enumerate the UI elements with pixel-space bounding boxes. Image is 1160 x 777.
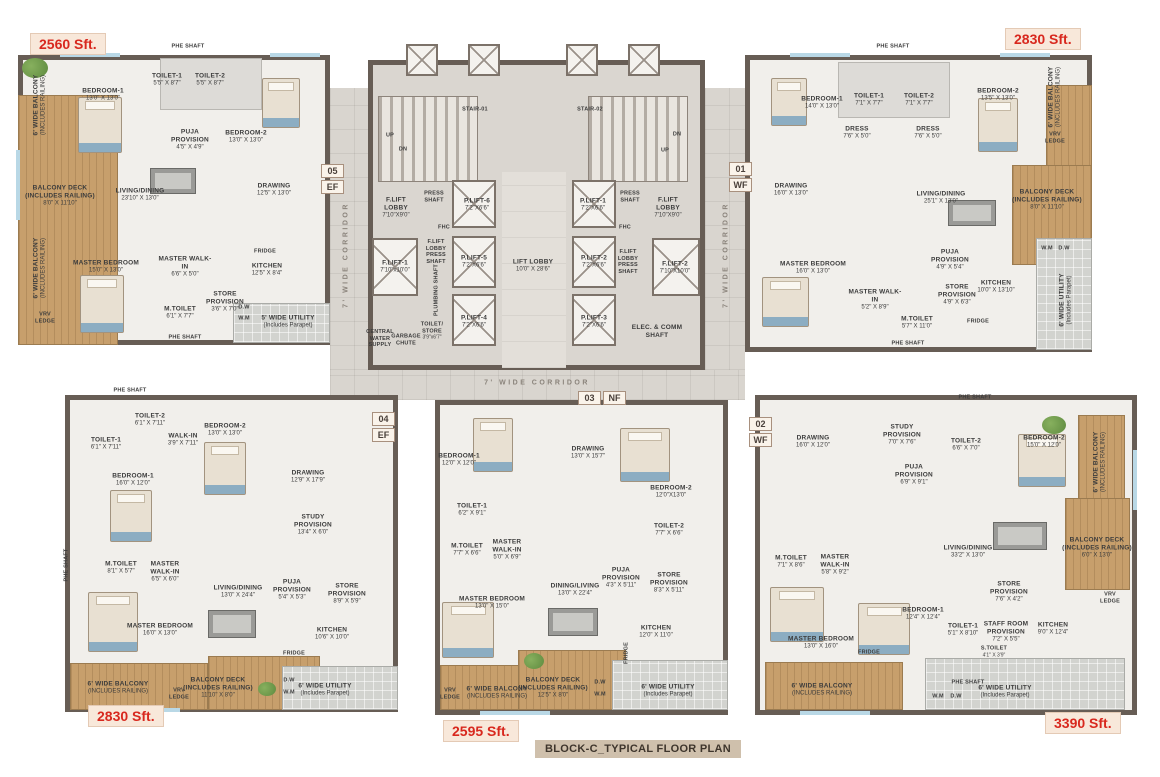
room-name: PUJA PROVISION xyxy=(888,464,940,480)
room-name: STORE PROVISION xyxy=(642,572,696,588)
label-up: UP xyxy=(386,133,394,140)
label-vrv-ledge: VRV LEDGE xyxy=(29,311,61,324)
room-dimension: 16'0" X 12'0" xyxy=(796,442,830,449)
area-label: 2830 Sft. xyxy=(1005,28,1081,50)
room-name: M.TOILET xyxy=(775,555,807,563)
room-dimension: 13'4" X 6'0" xyxy=(283,529,343,536)
room-dimension: 23'10" X 13'0" xyxy=(116,195,165,202)
room-dimension: 13'0" X 13'0" xyxy=(225,137,267,144)
room-name: BEDROOM-1 xyxy=(438,453,480,461)
label-phe-shaft: PHE SHAFT xyxy=(64,549,71,582)
zone-bed xyxy=(262,78,300,128)
label-press-shaft: PRESS SHAFT xyxy=(419,190,449,203)
label-drawing: DRAWING13'0" X 15'7" xyxy=(571,446,605,461)
label-phe-shaft: PHE SHAFT xyxy=(169,335,202,342)
room-name: MASTER WALK-IN xyxy=(483,539,531,555)
label-balcony-deck-includes-railing: BALCONY DECK (INCLUDES RAILING)11'10" X … xyxy=(179,677,257,700)
label-p-lift-6: P.LIFT-67'2"X6'6" xyxy=(464,198,490,213)
label-master-walk-in: MASTER WALK-IN5'2" X 8'9" xyxy=(847,289,903,312)
room-name: P.LIFT-6 xyxy=(464,198,490,206)
label-p-lift-2: P.LIFT-27'2"X6'6" xyxy=(581,255,607,270)
label-d-w: D.W xyxy=(950,694,961,701)
label-plumbing-shaft: PLUMBING SHAFT xyxy=(434,264,441,316)
room-name: TOILET-2 xyxy=(904,93,934,101)
room-name: D.W xyxy=(1058,246,1069,253)
room-name: FRIDGE xyxy=(967,319,989,326)
room-dimension: 7'2"X6'6" xyxy=(581,262,607,269)
label-up: UP xyxy=(661,148,669,155)
room-dimension: 16'0" X 13'0" xyxy=(774,190,808,197)
room-name: MASTER WALK-IN xyxy=(847,289,903,305)
room-name: P.LIFT-5 xyxy=(461,255,487,263)
room-name: MASTER WALK-IN xyxy=(139,561,191,577)
room-dimension: 7'10"X10'0" xyxy=(660,268,691,275)
label-master-walk-in: MASTER WALK-IN6'6" X 5'0" xyxy=(157,256,213,279)
label-bedroom-1: BEDROOM-116'0" X 12'0" xyxy=(112,473,154,488)
zone-table xyxy=(548,608,598,636)
badge-chip: EF xyxy=(321,180,344,194)
area-label: 2830 Sft. xyxy=(88,705,164,727)
label-m-toilet: M.TOILET8'1" X 5'7" xyxy=(105,561,137,576)
label-toilet-2: TOILET-26'6" X 7'0" xyxy=(951,438,981,453)
label-drawing: DRAWING12'9" X 17'9" xyxy=(291,470,325,485)
label-dn: DN xyxy=(399,147,407,154)
room-dimension: 13'0" X 24'4" xyxy=(214,592,263,599)
room-dimension: 12'0"X13'0" xyxy=(650,492,692,499)
zone-glass xyxy=(480,711,550,715)
room-name: DN xyxy=(399,147,407,154)
room-dimension: 10'6" X 10'0" xyxy=(315,634,349,641)
badge-chip: WF xyxy=(749,433,772,447)
label-bedroom-2: BEDROOM-213'5" X 13'0" xyxy=(977,88,1019,103)
zone-bed xyxy=(80,275,124,333)
room-dimension: 7'2"X6'6" xyxy=(464,205,490,212)
room-name: TOILET-2 xyxy=(135,413,165,421)
room-name: W.M xyxy=(932,694,944,701)
area-label: 3390 Sft. xyxy=(1045,712,1121,734)
label-6-wide-utility: 6' WIDE UTILITY(Includes Parapet) xyxy=(294,683,356,698)
label-living-dining: LIVING/DINING33'2" X 13'0" xyxy=(944,545,993,560)
label-toilet-1: TOILET-17'1" X 7'7" xyxy=(854,93,884,108)
label-toilet-2: TOILET-27'1" X 7'7" xyxy=(904,93,934,108)
label-fridge: FRIDGE xyxy=(254,249,276,256)
label-master-bedroom: MASTER BEDROOM16'0" X 13'0" xyxy=(127,623,193,638)
label-balcony-deck-includes-railing: BALCONY DECK (INCLUDES RAILING)8'0" X 11… xyxy=(23,185,97,208)
room-name: 6' WIDE BALCONY xyxy=(787,683,857,691)
room-dimension: 6'1" X 7'7" xyxy=(164,313,196,320)
room-name: BEDROOM-1 xyxy=(82,88,124,96)
room-dimension: 6'5" X 6'0" xyxy=(139,576,191,583)
room-dimension: 9'0" X 12'4" xyxy=(1038,629,1069,636)
room-dimension: 13'5" X 13'0" xyxy=(977,95,1019,102)
label-kitchen: KITCHEN12'5" X 8'4" xyxy=(252,263,283,278)
room-dimension: (INCLUDES RAILING) xyxy=(1100,432,1107,493)
room-dimension: 7'6" X 5'0" xyxy=(843,133,870,140)
room-name: PUJA PROVISION xyxy=(595,567,647,583)
label-balcony-deck-includes-railing: BALCONY DECK (INCLUDES RAILING)8'0" X 11… xyxy=(1010,189,1084,212)
room-name: LIFT LOBBY xyxy=(513,259,553,267)
room-name: BALCONY DECK (INCLUDES RAILING) xyxy=(179,677,257,693)
room-dimension: 7'1" X 8'6" xyxy=(775,562,807,569)
area-label: 2560 Sft. xyxy=(30,33,106,55)
room-name: BEDROOM-2 xyxy=(1023,435,1065,443)
label-bedroom-1: BEDROOM-112'0" X 12'0" xyxy=(438,453,480,468)
corridor-label: 7' WIDE CORRIDOR xyxy=(343,202,350,308)
room-name: STORE PROVISION xyxy=(982,581,1036,597)
label-stair-02: STAIR-02 xyxy=(577,107,603,114)
room-dimension: 7'2"X6'6" xyxy=(581,322,607,329)
room-name: STORE PROVISION xyxy=(320,583,374,599)
room-dimension: 5'1" X 8'10" xyxy=(948,630,979,637)
label-study-provision: STUDY PROVISION13'4" X 6'0" xyxy=(283,514,343,537)
room-name: TOILET-1 xyxy=(854,93,884,101)
room-dimension: 13'0" X 13'0" xyxy=(82,95,124,102)
badge-chip: EF xyxy=(372,428,395,442)
label-drawing: DRAWING12'5" X 13'0" xyxy=(257,183,291,198)
room-dimension: 13'0" X 15'0" xyxy=(459,603,525,610)
label-fridge: FRIDGE xyxy=(624,642,631,664)
label-6-wide-balcony: 6' WIDE BALCONY(INCLUDES RAILING) xyxy=(33,238,48,299)
room-name: 6' WIDE UTILITY xyxy=(294,683,356,691)
room-name: M.TOILET xyxy=(164,306,196,314)
room-dimension: 7'6" X 4'2" xyxy=(982,596,1036,603)
area-label: 2595 Sft. xyxy=(443,720,519,742)
label-f-lift-lobby-press-shaft: F.LIFT LOBBY PRESS SHAFT xyxy=(613,249,643,275)
label-p-lift-4: P.LIFT-47'2"X6'6" xyxy=(461,315,487,330)
room-name: TOILET-1 xyxy=(91,437,121,445)
label-p-lift-1: P.LIFT-17'2"X6'6" xyxy=(580,198,606,213)
room-name: P.LIFT-4 xyxy=(461,315,487,323)
zone-stair xyxy=(588,96,688,182)
room-name: TOILET-2 xyxy=(654,523,684,531)
unit-badge-05-ef: 05EF xyxy=(321,164,344,194)
zone-lift xyxy=(468,44,500,76)
room-dimension: (INCLUDES RAILING) xyxy=(1055,67,1062,128)
label-6-wide-utility: 6' WIDE UTILITY(Includes Parapet) xyxy=(1059,273,1074,326)
label-bedroom-1: BEDROOM-114'0" X 13'0" xyxy=(801,96,843,111)
label-master-walk-in: MASTER WALK-IN6'5" X 6'0" xyxy=(139,561,191,584)
label-vrv-ledge: VRV LEDGE xyxy=(1094,591,1126,604)
room-name: STAIR-02 xyxy=(577,107,603,114)
label-puja-provision: PUJA PROVISION4'9" X 5'4" xyxy=(924,249,976,272)
label-phe-shaft: PHE SHAFT xyxy=(952,680,985,687)
room-dimension: 13'0" X 16'0" xyxy=(788,643,854,650)
label-drawing: DRAWING16'0" X 13'0" xyxy=(774,183,808,198)
label-s-toilet: S.TOILET4'1" X 3'9" xyxy=(973,646,1015,659)
label-6-wide-balcony: 6' WIDE BALCONY(INCLUDES RAILING) xyxy=(1093,432,1108,493)
label-6-wide-balcony: 6' WIDE BALCONY(INCLUDES RAILING) xyxy=(33,75,48,136)
label-stair-01: STAIR-01 xyxy=(462,107,488,114)
zone-bed xyxy=(204,442,246,495)
room-dimension: 4'9" X 6'3" xyxy=(930,299,984,306)
room-name: PHE SHAFT xyxy=(64,549,71,582)
zone-bath xyxy=(838,62,950,118)
room-dimension: 7'2"X6'6" xyxy=(461,262,487,269)
label-bedroom-1: BEDROOM-112'4" X 12'4" xyxy=(902,607,944,622)
room-name: W.M xyxy=(594,692,606,699)
label-dn: DN xyxy=(673,132,681,139)
room-name: PHE SHAFT xyxy=(892,341,925,348)
room-dimension: 5'7" X 11'0" xyxy=(901,323,933,330)
room-name: 6' WIDE UTILITY xyxy=(637,684,699,692)
room-dimension: 4'1" X 3'9" xyxy=(973,652,1015,658)
label-5-wide-utility: 5' WIDE UTILITY(Includes Parapet) xyxy=(257,315,319,330)
zone-bed xyxy=(78,97,122,153)
zone-bed xyxy=(110,490,152,542)
room-dimension: 8'3" X 5'11" xyxy=(642,587,696,594)
room-dimension: 7'2"X6'6" xyxy=(580,205,606,212)
label-press-shaft: PRESS SHAFT xyxy=(615,190,645,203)
room-name: TOILET-2 xyxy=(195,73,225,81)
room-name: D.W xyxy=(950,694,961,701)
room-dimension: 8'0" X 11'10" xyxy=(23,200,97,207)
zone-table xyxy=(208,610,256,638)
label-master-bedroom: MASTER BEDROOM16'0" X 13'0" xyxy=(780,261,846,276)
label-toilet-1: TOILET-15'1" X 8'10" xyxy=(948,623,979,638)
label-puja-provision: PUJA PROVISION4'3" X 5'11" xyxy=(595,567,647,590)
label-m-toilet: M.TOILET7'7" X 6'6" xyxy=(451,543,483,558)
room-name: F.LIFT-1 xyxy=(380,260,410,268)
room-dimension: 7'10"X9'0" xyxy=(646,212,690,219)
room-name: TOILET-1 xyxy=(948,623,979,631)
label-living-dining: LIVING/DINING23'10" X 13'0" xyxy=(116,188,165,203)
room-dimension: 15'0" X 13'0" xyxy=(73,267,139,274)
label-store-provision: STORE PROVISION4'9" X 6'3" xyxy=(930,284,984,307)
room-name: F.LIFT LOBBY xyxy=(374,197,418,213)
room-dimension: 12'5" X 8'4" xyxy=(252,270,283,277)
room-name: PHE SHAFT xyxy=(952,680,985,687)
room-name: LIVING/DINING xyxy=(944,545,993,553)
room-name: BEDROOM-1 xyxy=(902,607,944,615)
room-dimension: 4'9" X 5'4" xyxy=(924,264,976,271)
room-name: MASTER BEDROOM xyxy=(73,260,139,268)
room-name: M.TOILET xyxy=(105,561,137,569)
unit-badge-02-wf: 02WF xyxy=(749,417,772,447)
label-w-m: W.M xyxy=(932,694,944,701)
badge-chip: 02 xyxy=(749,417,772,431)
room-dimension: (INCLUDES RAILING) xyxy=(40,75,47,136)
room-name: PHE SHAFT xyxy=(877,44,910,51)
room-name: UP xyxy=(661,148,669,155)
room-name: LIVING/DINING xyxy=(917,191,966,199)
label-fhc: FHC xyxy=(438,225,450,232)
label-toilet-1: TOILET-16'2" X 9'1" xyxy=(457,503,487,518)
room-name: PUJA PROVISION xyxy=(266,579,318,595)
room-dimension: 7'7" X 6'6" xyxy=(451,550,483,557)
label-toilet-1: TOILET-15'5" X 8'7" xyxy=(152,73,182,88)
zone-bed xyxy=(620,428,670,482)
room-dimension: 12'0" X 11'0" xyxy=(639,632,672,639)
room-name: TOILET-1 xyxy=(457,503,487,511)
label-toilet-store: TOILET/ STORE3'9"x6'7" xyxy=(415,321,449,340)
room-dimension: (INCLUDES RAILING) xyxy=(83,688,153,695)
room-name: STORE PROVISION xyxy=(930,284,984,300)
label-kitchen: KITCHEN10'6" X 10'0" xyxy=(315,627,349,642)
room-dimension: 5'5" X 8'7" xyxy=(195,80,225,87)
room-dimension: 5'4" X 5'3" xyxy=(266,594,318,601)
label-w-m: W.M xyxy=(1041,246,1053,253)
room-name: DRAWING xyxy=(774,183,808,191)
label-store-provision: STORE PROVISION7'6" X 4'2" xyxy=(982,581,1036,604)
room-dimension: 6'2" X 9'1" xyxy=(457,510,487,517)
room-name: 6' WIDE BALCONY xyxy=(83,681,153,689)
room-name: DRESS xyxy=(843,126,870,134)
label-6-wide-utility: 6' WIDE UTILITY(Includes Parapet) xyxy=(637,684,699,699)
label-bedroom-1: BEDROOM-113'0" X 13'0" xyxy=(82,88,124,103)
label-m-toilet: M.TOILET6'1" X 7'7" xyxy=(164,306,196,321)
room-name: WALK-IN xyxy=(168,433,198,441)
room-dimension: 12'9" X 17'9" xyxy=(291,477,325,484)
room-dimension: (INCLUDES RAILING) xyxy=(787,690,857,697)
label-puja-provision: PUJA PROVISION5'4" X 5'3" xyxy=(266,579,318,602)
corridor-label: 7' WIDE CORRIDOR xyxy=(484,380,590,387)
room-name: MASTER BEDROOM xyxy=(127,623,193,631)
badge-chip: 01 xyxy=(729,162,752,176)
label-walk-in: WALK-IN3'9" X 7'11" xyxy=(168,433,198,448)
room-name: PLUMBING SHAFT xyxy=(434,264,441,316)
room-dimension: 13'0" X 15'7" xyxy=(571,453,605,460)
label-study-provision: STUDY PROVISION7'0" X 7'6" xyxy=(872,424,932,447)
label-p-lift-5: P.LIFT-57'2"X6'6" xyxy=(461,255,487,270)
label-fhc: FHC xyxy=(619,225,631,232)
label-toilet-2: TOILET-27'7" X 6'6" xyxy=(654,523,684,538)
label-dining-living: DINING/LIVING13'0" X 22'4" xyxy=(551,583,600,598)
label-6-wide-balcony: 6' WIDE BALCONY(INCLUDES RAILING) xyxy=(1048,67,1063,128)
room-name: S.TOILET xyxy=(973,646,1015,653)
plan-caption: BLOCK-C_TYPICAL FLOOR PLAN xyxy=(535,740,741,758)
label-drawing: DRAWING16'0" X 12'0" xyxy=(796,435,830,450)
zone-glass xyxy=(1000,53,1050,57)
room-dimension: 6'0" X 13'0" xyxy=(1061,552,1133,559)
label-fridge: FRIDGE xyxy=(967,319,989,326)
room-dimension: 3'9"x6'7" xyxy=(415,335,449,341)
label-store-provision: STORE PROVISION8'9" X 5'9" xyxy=(320,583,374,606)
room-name: P.LIFT-1 xyxy=(580,198,606,206)
room-name: VRV LEDGE xyxy=(1039,131,1071,144)
label-master-bedroom: MASTER BEDROOM13'0" X 15'0" xyxy=(459,596,525,611)
room-name: BALCONY DECK (INCLUDES RAILING) xyxy=(1061,537,1133,553)
zone-glass xyxy=(790,53,850,57)
room-dimension: 7'1" X 7'7" xyxy=(854,100,884,107)
zone-glass xyxy=(800,711,870,715)
room-name: DRAWING xyxy=(796,435,830,443)
label-m-toilet: M.TOILET5'7" X 11'0" xyxy=(901,316,933,331)
room-dimension: 16'0" X 12'0" xyxy=(112,480,154,487)
room-dimension: 8'0" X 11'10" xyxy=(1010,204,1084,211)
zone-table xyxy=(993,522,1047,550)
room-dimension: 13'0" X 22'4" xyxy=(551,590,600,597)
room-name: FRIDGE xyxy=(858,650,880,657)
zone-glass xyxy=(270,53,320,57)
label-dress: DRESS7'6" X 5'0" xyxy=(914,126,941,141)
label-puja-provision: PUJA PROVISION6'9" X 9'1" xyxy=(888,464,940,487)
zone-bed xyxy=(978,98,1018,152)
label-phe-shaft: PHE SHAFT xyxy=(172,44,205,51)
label-bedroom-2: BEDROOM-213'0" X 13'0" xyxy=(204,423,246,438)
room-name: PHE SHAFT xyxy=(114,388,147,395)
room-name: BEDROOM-2 xyxy=(204,423,246,431)
room-dimension: 5'0" X 6'9" xyxy=(483,554,531,561)
room-name: BEDROOM-1 xyxy=(112,473,154,481)
room-name: DN xyxy=(673,132,681,139)
room-name: M.TOILET xyxy=(901,316,933,324)
room-name: DRAWING xyxy=(291,470,325,478)
label-store-provision: STORE PROVISION8'3" X 5'11" xyxy=(642,572,696,595)
room-dimension: 6'6" X 5'0" xyxy=(157,271,213,278)
label-w-m: W.M xyxy=(238,316,250,323)
room-name: W.M xyxy=(283,690,295,697)
room-dimension: 16'0" X 13'0" xyxy=(780,268,846,275)
room-name: 6' WIDE BALCONY xyxy=(1048,67,1056,128)
zone-plant xyxy=(258,682,276,696)
label-living-dining: LIVING/DINING13'0" X 24'4" xyxy=(214,585,263,600)
room-dimension: (Includes Parapet) xyxy=(294,690,356,697)
room-name: KITCHEN xyxy=(1038,622,1069,630)
zone-lift xyxy=(628,44,660,76)
room-dimension: 12'5" X 8'0" xyxy=(514,692,592,699)
label-bedroom-2: BEDROOM-213'0" X 13'0" xyxy=(225,130,267,145)
room-name: D.W xyxy=(238,305,249,312)
room-dimension: 15'0" X 12'0" xyxy=(1023,442,1065,449)
room-name: KITCHEN xyxy=(977,280,1014,288)
badge-chip: NF xyxy=(603,391,626,405)
room-name: DINING/LIVING xyxy=(551,583,600,591)
room-name: TOILET-1 xyxy=(152,73,182,81)
room-dimension: 3'9" X 7'11" xyxy=(168,440,198,447)
label-p-lift-3: P.LIFT-37'2"X6'6" xyxy=(581,315,607,330)
room-name: PHE SHAFT xyxy=(959,395,992,402)
room-dimension: 6'9" X 9'1" xyxy=(888,479,940,486)
room-dimension: 33'2" X 13'0" xyxy=(944,552,993,559)
badge-chip: 03 xyxy=(578,391,601,405)
label-d-w: D.W xyxy=(283,678,294,685)
room-name: F.LIFT LOBBY xyxy=(646,197,690,213)
room-name: DRAWING xyxy=(257,183,291,191)
room-name: STUDY PROVISION xyxy=(872,424,932,440)
room-dimension: 5'8" X 9'2" xyxy=(809,569,861,576)
room-name: STAIR-01 xyxy=(462,107,488,114)
room-name: 5' WIDE UTILITY xyxy=(257,315,319,323)
room-dimension: 7'6" X 5'0" xyxy=(914,133,941,140)
room-name: STAFF ROOM PROVISION xyxy=(975,621,1037,637)
label-m-toilet: M.TOILET7'1" X 8'6" xyxy=(775,555,807,570)
zone-bed xyxy=(762,277,809,327)
label-toilet-2: TOILET-25'5" X 8'7" xyxy=(195,73,225,88)
room-name: PRESS SHAFT xyxy=(419,190,449,203)
zone-glass xyxy=(16,150,20,220)
label-puja-provision: PUJA PROVISION4'5" X 4'9" xyxy=(166,129,214,152)
label-phe-shaft: PHE SHAFT xyxy=(892,341,925,348)
room-name: W.M xyxy=(1041,246,1053,253)
room-dimension: 4'5" X 4'9" xyxy=(166,144,214,151)
room-name: MASTER WALK-IN xyxy=(157,256,213,272)
room-name: BALCONY DECK (INCLUDES RAILING) xyxy=(1010,189,1084,205)
label-d-w: D.W xyxy=(1058,246,1069,253)
label-f-lift-1: F.LIFT-17'10"x10'0" xyxy=(380,260,410,275)
room-dimension: 12'5" X 13'0" xyxy=(257,190,291,197)
room-name: PHE SHAFT xyxy=(172,44,205,51)
room-name: UP xyxy=(386,133,394,140)
room-name: F.LIFT LOBBY PRESS SHAFT xyxy=(613,249,643,275)
label-elec-comm-shaft: ELEC. & COMM SHAFT xyxy=(626,324,688,340)
room-dimension: 6'1" X 7'11" xyxy=(135,420,165,427)
label-d-w: D.W xyxy=(594,680,605,687)
zone-lift xyxy=(406,44,438,76)
label-w-m: W.M xyxy=(283,690,295,697)
label-balcony-deck-includes-railing: BALCONY DECK (INCLUDES RAILING)12'5" X 8… xyxy=(514,677,592,700)
room-name: STUDY PROVISION xyxy=(283,514,343,530)
room-name: M.TOILET xyxy=(451,543,483,551)
